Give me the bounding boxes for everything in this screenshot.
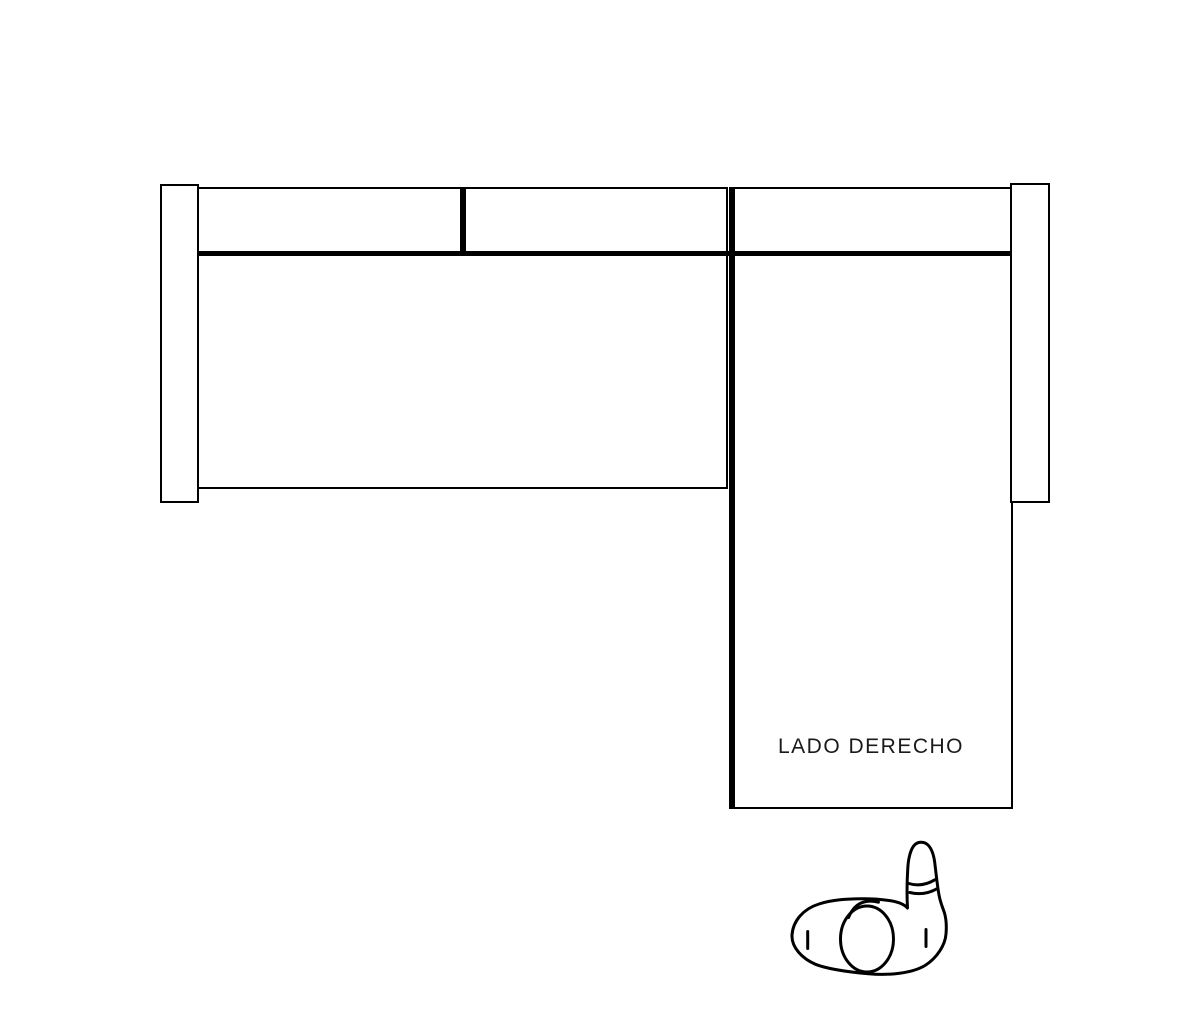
person-top-view-icon [785, 835, 955, 980]
right-armrest [1010, 183, 1050, 503]
backrest-section-right [729, 187, 1013, 255]
left-armrest [160, 184, 199, 503]
chaise-label: LADO DERECHO [729, 734, 1013, 760]
backrest-section-left [197, 187, 464, 255]
chaise-left-edge-line [729, 188, 735, 809]
backrest-bottom-line [197, 251, 1013, 256]
seat-section [197, 252, 728, 489]
backrest-divider-line [460, 188, 466, 256]
backrest-section-middle [461, 187, 728, 255]
chaise-section [729, 252, 1013, 809]
sofa-floorplan: LADO DERECHO [0, 0, 1200, 1028]
